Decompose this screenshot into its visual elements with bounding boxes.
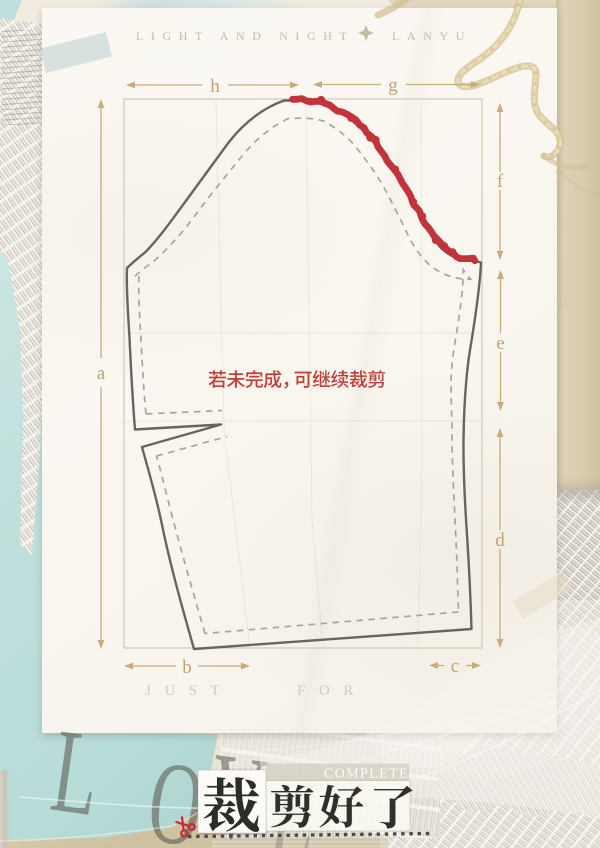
svg-text:COMPLETE: COMPLETE (324, 767, 409, 782)
